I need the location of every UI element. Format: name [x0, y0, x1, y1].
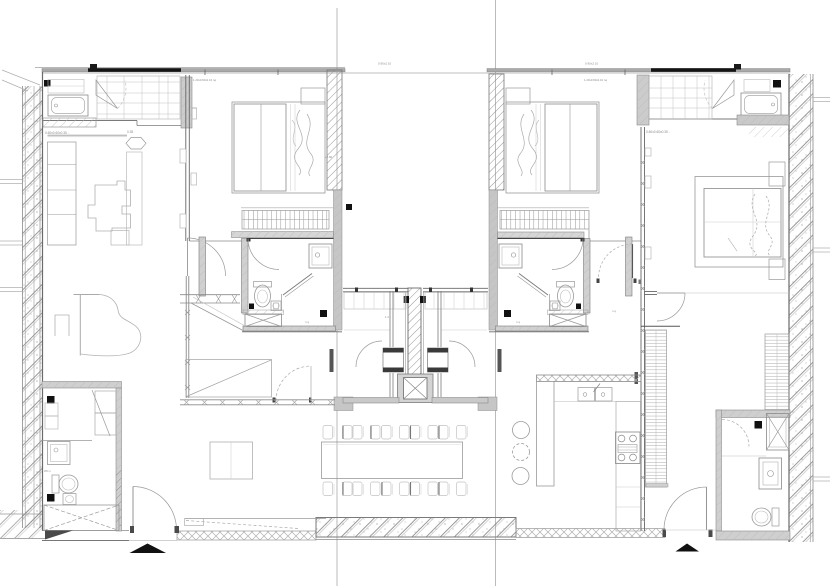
- svg-text:1.20x0.60x2.10 nq: 1.20x0.60x2.10 nq: [193, 78, 216, 82]
- svg-text:n q: n q: [516, 320, 520, 324]
- svg-text:WC n: WC n: [44, 469, 51, 473]
- svg-text:0.60x0.60x0.35 ..: 0.60x0.60x0.35 ..: [646, 130, 671, 134]
- svg-text:0.90x2.10: 0.90x2.10: [585, 62, 599, 66]
- svg-text:n q: n q: [305, 320, 309, 324]
- svg-text:+2.80: +2.80: [325, 155, 333, 159]
- svg-text:0.35: 0.35: [127, 130, 133, 134]
- svg-text:0.60x0.60x0.35 ..: 0.60x0.60x0.35 ..: [45, 131, 70, 135]
- svg-text:1.20x0.60x2.10 nq: 1.20x0.60x2.10 nq: [584, 78, 607, 82]
- svg-text:1 2: 1 2: [385, 315, 389, 319]
- svg-text:n q: n q: [612, 309, 616, 313]
- svg-text:0.90x2.10: 0.90x2.10: [378, 62, 392, 66]
